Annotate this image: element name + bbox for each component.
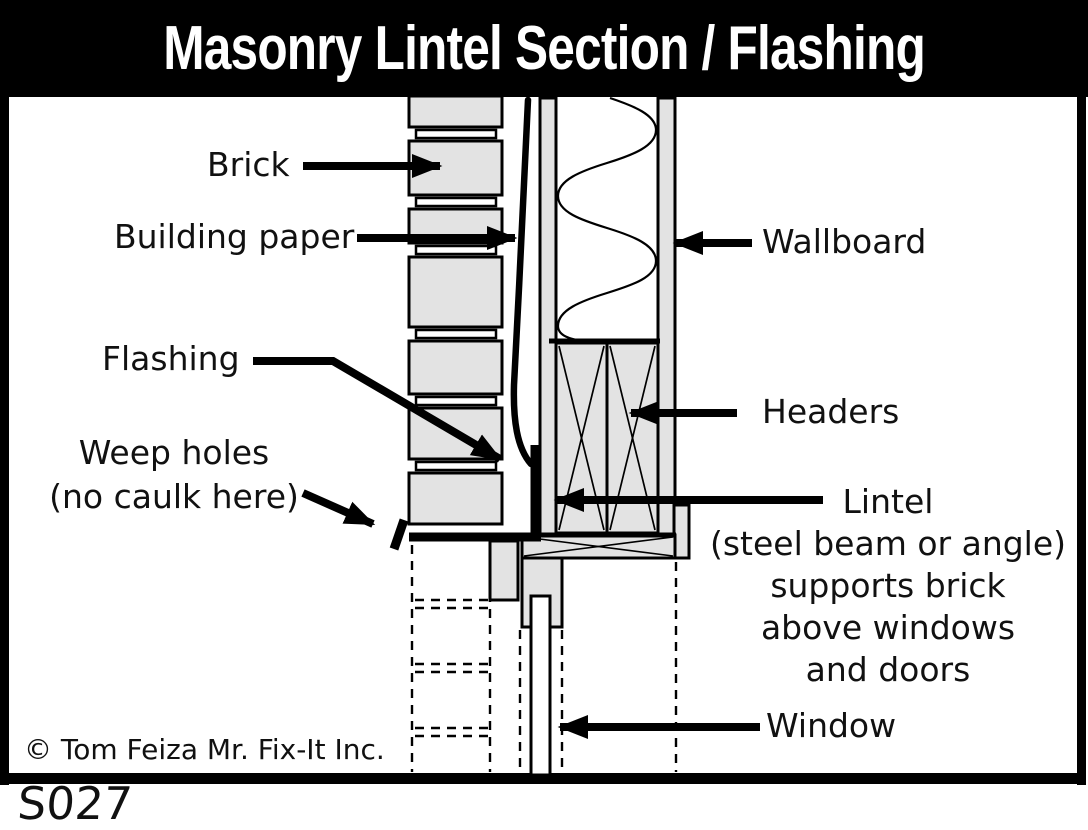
headers-lumber — [549, 341, 660, 533]
brick — [409, 96, 502, 127]
weep-drip-edge — [394, 520, 404, 549]
weep-holes-arrow — [303, 493, 373, 524]
lintel-line4: above windows — [692, 607, 1084, 649]
brick-label: Brick — [207, 147, 290, 183]
lintel-line5: and doors — [692, 649, 1084, 691]
sheathing-layer — [540, 98, 556, 535]
wallboard-label: Wallboard — [762, 224, 926, 260]
insulation-batt — [558, 98, 656, 342]
sill-plate — [522, 535, 676, 558]
window-glazing — [531, 596, 550, 775]
headers-label: Headers — [762, 394, 899, 430]
title-bar: Masonry Lintel Section / Flashing — [0, 0, 1088, 97]
brick-column — [409, 96, 502, 524]
lintel-line2: (steel beam or angle) — [692, 523, 1084, 565]
brick — [409, 341, 502, 394]
brick — [409, 473, 502, 524]
weep-holes-line2: (no caulk here) — [40, 475, 308, 519]
brick — [409, 257, 502, 327]
weep-holes-label: Weep holes (no caulk here) — [40, 431, 308, 519]
window-label: Window — [766, 708, 896, 744]
flashing-label: Flashing — [102, 341, 240, 377]
wallboard-layer — [658, 98, 675, 539]
building-paper-line — [514, 100, 531, 464]
masonry-lintel-section-diagram — [0, 0, 1088, 830]
page-title: Masonry Lintel Section / Flashing — [163, 13, 925, 84]
weep-holes-line1: Weep holes — [40, 431, 308, 475]
brick-mould-trim — [490, 541, 518, 600]
lintel-line3: supports brick — [692, 565, 1084, 607]
copyright-text: © Tom Feiza Mr. Fix-It Inc. — [24, 735, 385, 766]
lintel-label: Lintel (steel beam or angle) supports br… — [692, 481, 1084, 691]
figure-code: S027 — [16, 779, 134, 829]
lintel-line1: Lintel — [692, 481, 1084, 523]
building-paper-label: Building paper — [114, 219, 354, 255]
